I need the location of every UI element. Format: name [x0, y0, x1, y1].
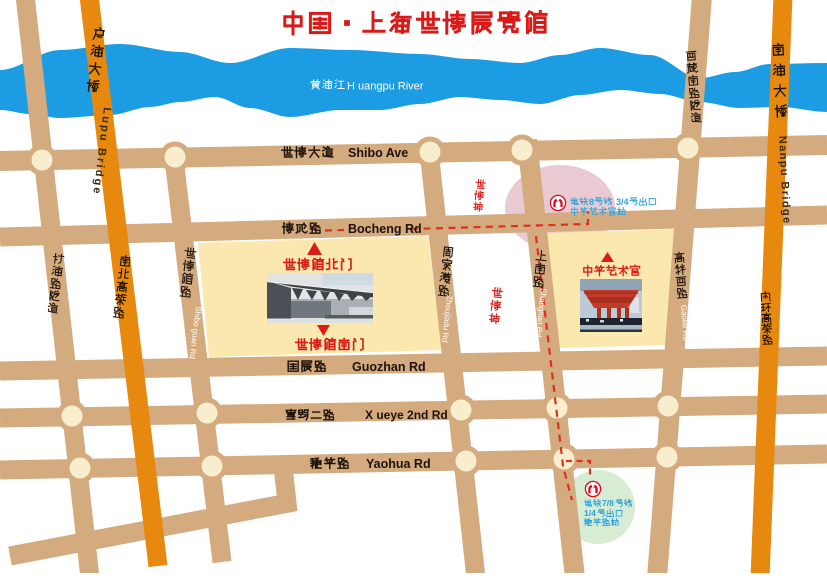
- svg-text:Bocheng Rd: Bocheng Rd: [348, 222, 422, 236]
- svg-text:Guozhan Rd: Guozhan Rd: [352, 360, 426, 374]
- svg-text:1/4: 1/4: [584, 508, 596, 518]
- svg-text:H uangpu River: H uangpu River: [347, 81, 424, 93]
- svg-text:X ueye 2nd Rd: X ueye 2nd Rd: [365, 408, 448, 422]
- svg-text:Yaohua Rd: Yaohua Rd: [366, 457, 431, 471]
- svg-text:3/4: 3/4: [616, 197, 629, 207]
- svg-text:Shibo Ave: Shibo Ave: [348, 146, 408, 160]
- svg-text:7/8: 7/8: [602, 498, 614, 508]
- svg-text:8: 8: [589, 197, 594, 207]
